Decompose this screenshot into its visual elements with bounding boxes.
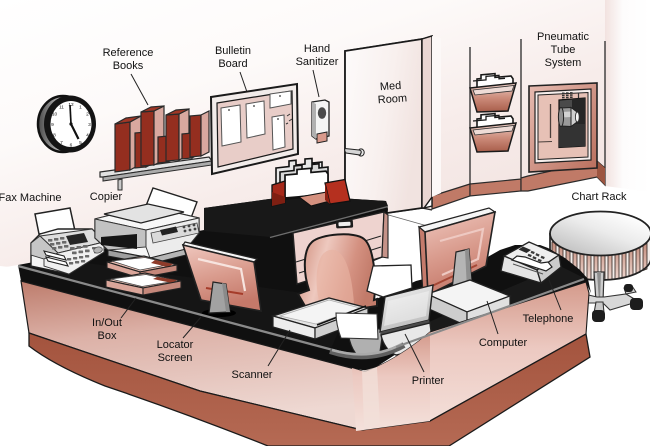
svg-text:2: 2 (86, 112, 89, 118)
svg-text:12: 12 (68, 102, 74, 108)
svg-text:3: 3 (88, 122, 91, 128)
svg-text:Room: Room (377, 92, 407, 106)
svg-text:System: System (545, 57, 582, 69)
svg-text:Box: Box (98, 330, 117, 342)
svg-text:10: 10 (52, 112, 58, 118)
svg-text:8: 8 (53, 133, 56, 139)
svg-text:Hand: Hand (304, 43, 330, 55)
svg-text:Printer: Printer (412, 375, 445, 387)
svg-text:Fax Machine: Fax Machine (0, 192, 61, 204)
svg-text:5: 5 (79, 140, 82, 146)
svg-text:Telephone: Telephone (523, 313, 574, 325)
svg-text:11: 11 (59, 105, 64, 111)
svg-text:4: 4 (86, 133, 89, 139)
svg-text:7: 7 (60, 140, 63, 146)
svg-text:Bulletin: Bulletin (215, 45, 251, 57)
svg-text:Med: Med (379, 80, 401, 93)
svg-text:In/Out: In/Out (92, 317, 122, 329)
svg-text:Reference: Reference (103, 47, 154, 59)
svg-text:9: 9 (51, 122, 54, 128)
svg-text:Computer: Computer (479, 337, 528, 349)
svg-text:1: 1 (79, 105, 82, 111)
svg-text:Screen: Screen (158, 352, 193, 364)
svg-text:Scanner: Scanner (232, 369, 273, 381)
svg-text:Books: Books (113, 60, 144, 72)
svg-text:Board: Board (218, 58, 247, 70)
svg-text:6: 6 (70, 143, 73, 149)
svg-text:Pneumatic: Pneumatic (537, 31, 589, 43)
svg-text:Locator: Locator (157, 339, 194, 351)
svg-text:Tube: Tube (551, 44, 576, 56)
svg-text:Sanitizer: Sanitizer (296, 56, 339, 68)
svg-text:Chart Rack: Chart Rack (571, 191, 627, 203)
svg-text:Copier: Copier (90, 191, 123, 203)
